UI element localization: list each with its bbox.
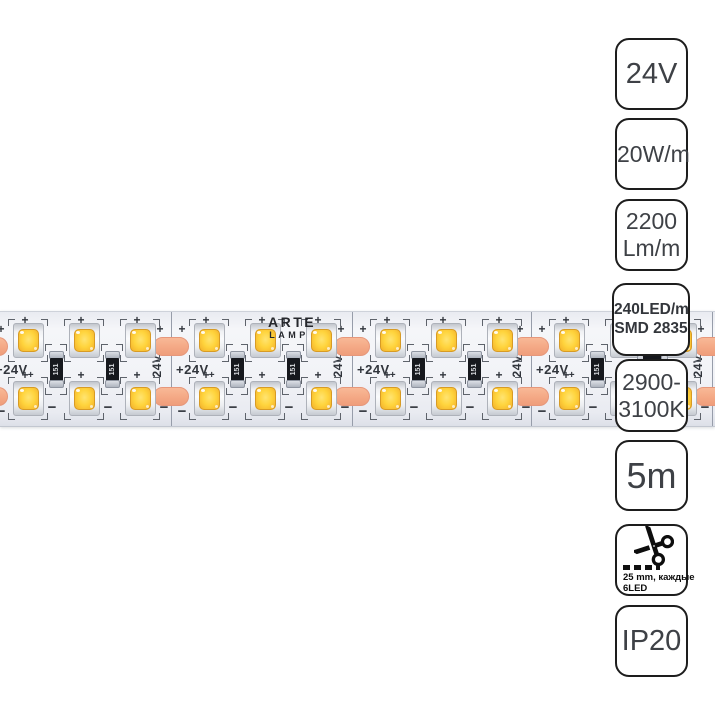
led-bracket	[549, 355, 556, 362]
led-bracket	[370, 413, 377, 420]
polarity-plus: +	[436, 369, 450, 381]
badge-line: 24V	[617, 59, 686, 90]
led-bracket	[41, 319, 48, 326]
led-package	[487, 323, 518, 358]
resistor-bracket	[478, 344, 485, 351]
spec-badge-ip-rating: IP20	[615, 605, 688, 677]
cut-step-text: 25 mm, каждые6LED	[623, 573, 695, 594]
led-window	[559, 329, 580, 352]
led-bracket	[222, 355, 229, 362]
led-window	[492, 387, 513, 410]
badge-line: Lm/m	[617, 235, 686, 262]
polarity-minus: −	[698, 400, 712, 415]
polarity-minus: −	[45, 400, 59, 415]
resistor-label: 151	[464, 362, 485, 377]
spec-badge-length: 5m	[615, 440, 688, 511]
resistor-bracket	[226, 344, 233, 351]
led-bracket	[120, 355, 127, 362]
polarity-minus: −	[586, 400, 600, 415]
led-bracket	[189, 319, 196, 326]
led-package	[375, 381, 406, 416]
led-bracket	[301, 355, 308, 362]
resistor-bracket	[282, 388, 289, 395]
resistor-bracket	[601, 388, 608, 395]
led-window	[130, 329, 151, 352]
led-bracket	[482, 413, 489, 420]
led-package	[554, 323, 585, 358]
spec-badge-power: 20W/m	[615, 118, 688, 190]
led-window	[380, 329, 401, 352]
led-bracket	[370, 355, 377, 362]
polarity-minus: −	[101, 400, 115, 415]
badge-line: 25 mm, каждые	[623, 573, 695, 584]
resistor-label: 151	[587, 362, 608, 377]
led-bracket	[153, 355, 160, 362]
polarity-plus: +	[380, 369, 394, 381]
polarity-plus: +	[311, 369, 325, 381]
led-window	[436, 387, 457, 410]
resistor-cap	[590, 380, 605, 388]
led-bracket	[694, 377, 701, 384]
led-package	[125, 381, 156, 416]
polarity-plus: +	[255, 314, 269, 326]
led-package	[194, 381, 225, 416]
resistor: 151	[105, 351, 120, 388]
led-bracket	[97, 355, 104, 362]
resistor-bracket	[297, 388, 304, 395]
solder-pad	[0, 337, 8, 356]
resistor: 151	[590, 351, 605, 388]
led-bracket	[582, 377, 589, 384]
led-bracket	[605, 319, 612, 326]
led-bracket	[605, 355, 612, 362]
product-image: ++−24V+24V+++−24V+24V+++−24V+24V+++−24V+…	[0, 0, 715, 715]
brand-logo: ARTELAMP	[268, 315, 310, 340]
spec-badge-voltage: 24V	[615, 38, 688, 110]
resistor-bracket	[226, 388, 233, 395]
led-package	[431, 323, 462, 358]
led-bracket	[8, 355, 15, 362]
resistor-bracket	[241, 388, 248, 395]
resistor-bracket	[101, 388, 108, 395]
brand-line-2: LAMP	[268, 330, 310, 340]
resistor-bracket	[116, 388, 123, 395]
resistor-label: 151	[227, 362, 248, 377]
led-bracket	[694, 355, 701, 362]
resistor-bracket	[282, 344, 289, 351]
led-window	[255, 387, 276, 410]
led-bracket	[278, 377, 285, 384]
led-bracket	[515, 355, 522, 362]
polarity-minus: −	[407, 400, 421, 415]
led-bracket	[222, 319, 229, 326]
led-bracket	[426, 377, 433, 384]
led-bracket	[301, 377, 308, 384]
led-bracket	[120, 377, 127, 384]
badge-line: 20W/m	[617, 142, 686, 167]
polarity-minus: −	[338, 400, 352, 415]
led-bracket	[8, 319, 15, 326]
polarity-minus: −	[282, 400, 296, 415]
polarity-plus: +	[130, 314, 144, 326]
led-bracket	[403, 355, 410, 362]
resistor-bracket	[422, 388, 429, 395]
polarity-minus: −	[463, 400, 477, 415]
resistor-bracket	[586, 388, 593, 395]
led-bracket	[370, 319, 377, 326]
resistor-bracket	[45, 388, 52, 395]
resistor-bracket	[45, 344, 52, 351]
polarity-plus: +	[175, 323, 189, 335]
led-bracket	[189, 355, 196, 362]
led-bracket	[64, 413, 71, 420]
badge-line: 6LED	[623, 584, 695, 595]
led-bracket	[482, 319, 489, 326]
led-bracket	[245, 319, 252, 326]
brand-line-1: ARTE	[268, 315, 310, 329]
resistor-bracket	[601, 344, 608, 351]
led-bracket	[549, 413, 556, 420]
badge-line: IP20	[617, 626, 686, 657]
led-bracket	[334, 319, 341, 326]
led-window	[311, 387, 332, 410]
led-bracket	[515, 377, 522, 384]
led-bracket	[549, 377, 556, 384]
led-package	[306, 381, 337, 416]
polarity-plus: +	[0, 323, 8, 335]
led-bracket	[334, 377, 341, 384]
led-bracket	[97, 319, 104, 326]
resistor-cap	[467, 380, 482, 388]
led-bracket	[64, 355, 71, 362]
led-package	[69, 381, 100, 416]
led-bracket	[189, 377, 196, 384]
resistor-bracket	[101, 344, 108, 351]
led-bracket	[278, 355, 285, 362]
polarity-plus: +	[356, 323, 370, 335]
spec-badge-color-temperature: 2900-3100K	[615, 359, 688, 432]
scissors-icon	[634, 526, 674, 566]
resistor-bracket	[241, 344, 248, 351]
polarity-minus: −	[157, 400, 171, 415]
led-bracket	[189, 413, 196, 420]
badge-line: 3100K	[617, 396, 686, 423]
led-window	[74, 387, 95, 410]
polarity-plus: +	[492, 314, 506, 326]
led-bracket	[549, 319, 556, 326]
led-window	[559, 387, 580, 410]
led-bracket	[694, 319, 701, 326]
badge-line: 2900-	[617, 369, 686, 396]
led-package	[554, 381, 585, 416]
led-package	[13, 381, 44, 416]
led-bracket	[8, 413, 15, 420]
led-bracket	[64, 377, 71, 384]
led-bracket	[64, 319, 71, 326]
polarity-plus: +	[199, 314, 213, 326]
spec-badge-luminous-flux: 2200Lm/m	[615, 199, 688, 271]
polarity-plus: +	[18, 314, 32, 326]
led-window	[199, 387, 220, 410]
resistor-bracket	[463, 388, 470, 395]
resistor-bracket	[60, 388, 67, 395]
polarity-plus: +	[255, 369, 269, 381]
spec-badge-led-density: 240LED/mSMD 2835	[612, 283, 690, 356]
polarity-plus: +	[436, 314, 450, 326]
polarity-plus: +	[199, 369, 213, 381]
led-package	[194, 323, 225, 358]
polarity-minus: −	[356, 404, 370, 419]
resistor: 151	[467, 351, 482, 388]
led-bracket	[334, 355, 341, 362]
led-bracket	[459, 319, 466, 326]
cut-line	[712, 312, 713, 426]
led-strip: ++−24V+24V+++−24V+24V+++−24V+24V+++−24V+…	[0, 311, 715, 427]
resistor-bracket	[407, 388, 414, 395]
badge-line: 5m	[617, 457, 686, 495]
resistor-label: 151	[408, 362, 429, 377]
resistor-bracket	[422, 344, 429, 351]
cut-dash-line	[623, 565, 660, 570]
resistor: 151	[230, 351, 245, 388]
led-package	[250, 381, 281, 416]
led-bracket	[403, 377, 410, 384]
led-bracket	[459, 377, 466, 384]
led-bracket	[605, 377, 612, 384]
spec-badge-cut-step: 25 mm, каждые6LED	[615, 524, 688, 596]
led-window	[380, 387, 401, 410]
led-window	[199, 329, 220, 352]
polarity-minus: −	[0, 404, 8, 419]
led-bracket	[41, 377, 48, 384]
polarity-plus: +	[559, 369, 573, 381]
resistor-cap	[49, 380, 64, 388]
led-window	[74, 329, 95, 352]
polarity-minus: −	[175, 404, 189, 419]
led-package	[375, 323, 406, 358]
badge-line: SMD 2835	[614, 320, 688, 339]
resistor-cap	[411, 380, 426, 388]
led-bracket	[41, 355, 48, 362]
led-bracket	[120, 319, 127, 326]
resistor-bracket	[478, 388, 485, 395]
resistor-label: 151	[283, 362, 304, 377]
led-window	[130, 387, 151, 410]
led-bracket	[245, 377, 252, 384]
led-bracket	[153, 377, 160, 384]
resistor: 151	[411, 351, 426, 388]
resistor-bracket	[586, 344, 593, 351]
resistor-bracket	[407, 344, 414, 351]
led-window	[18, 329, 39, 352]
resistor-cap	[286, 380, 301, 388]
led-bracket	[153, 319, 160, 326]
badge-line: 240LED/m	[614, 301, 688, 320]
resistor: 151	[286, 351, 301, 388]
led-window	[18, 387, 39, 410]
led-bracket	[370, 377, 377, 384]
led-bracket	[459, 355, 466, 362]
led-bracket	[426, 355, 433, 362]
resistor-label: 151	[102, 362, 123, 377]
led-window	[311, 329, 332, 352]
resistor-label: 151	[46, 362, 67, 377]
led-bracket	[245, 413, 252, 420]
led-bracket	[8, 377, 15, 384]
led-bracket	[426, 319, 433, 326]
led-bracket	[582, 355, 589, 362]
led-window	[436, 329, 457, 352]
led-bracket	[482, 377, 489, 384]
resistor-bracket	[297, 344, 304, 351]
polarity-minus: −	[226, 400, 240, 415]
led-bracket	[301, 413, 308, 420]
led-package	[69, 323, 100, 358]
led-window	[492, 329, 513, 352]
polarity-plus: +	[535, 323, 549, 335]
polarity-plus: +	[130, 369, 144, 381]
polarity-plus: +	[492, 369, 506, 381]
spec-badges: 24V20W/m2200Lm/m240LED/mSMD 28352900-310…	[0, 0, 715, 72]
led-package	[13, 323, 44, 358]
led-bracket	[605, 413, 612, 420]
led-bracket	[426, 413, 433, 420]
resistor-cap	[230, 380, 245, 388]
led-bracket	[120, 413, 127, 420]
led-package	[487, 381, 518, 416]
resistor: 151	[49, 351, 64, 388]
polarity-plus: +	[559, 314, 573, 326]
polarity-plus: +	[74, 369, 88, 381]
led-bracket	[582, 319, 589, 326]
led-bracket	[515, 319, 522, 326]
polarity-minus: −	[535, 404, 549, 419]
resistor-cap	[105, 380, 120, 388]
cut-line	[352, 312, 353, 426]
polarity-minus: −	[519, 400, 533, 415]
led-bracket	[222, 377, 229, 384]
resistor-bracket	[60, 344, 67, 351]
led-package	[125, 323, 156, 358]
polarity-plus: +	[380, 314, 394, 326]
cut-line	[171, 312, 172, 426]
led-bracket	[482, 355, 489, 362]
resistor-bracket	[116, 344, 123, 351]
polarity-plus: +	[18, 369, 32, 381]
led-package	[431, 381, 462, 416]
resistor-bracket	[463, 344, 470, 351]
led-bracket	[97, 377, 104, 384]
led-bracket	[403, 319, 410, 326]
badge-line: 2200	[617, 208, 686, 235]
led-bracket	[245, 355, 252, 362]
polarity-plus: +	[74, 314, 88, 326]
